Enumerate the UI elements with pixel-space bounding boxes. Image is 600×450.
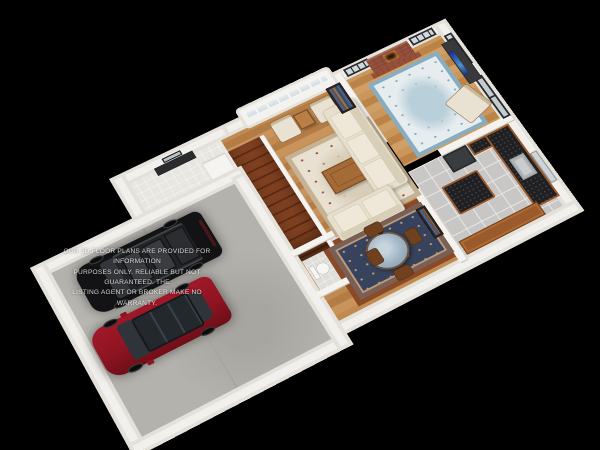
floor-plan [13, 23, 586, 450]
watermark-line-1: OUR 3D FLOOR PLANS ARE PROVIDED FOR INFO… [64, 248, 211, 265]
watermark-line-2: PURPOSES ONLY. RELIABLE BUT NOT GUARANTE… [73, 269, 200, 286]
watermark-line-3: LISTING AGENT OR BROKER MAKE NO WARRANTY… [72, 289, 202, 306]
watermark-disclaimer: OUR 3D FLOOR PLANS ARE PROVIDED FOR INFO… [58, 247, 216, 309]
isometric-scene [0, 0, 600, 450]
floorplan-render-stage: OUR 3D FLOOR PLANS ARE PROVIDED FOR INFO… [0, 0, 600, 450]
